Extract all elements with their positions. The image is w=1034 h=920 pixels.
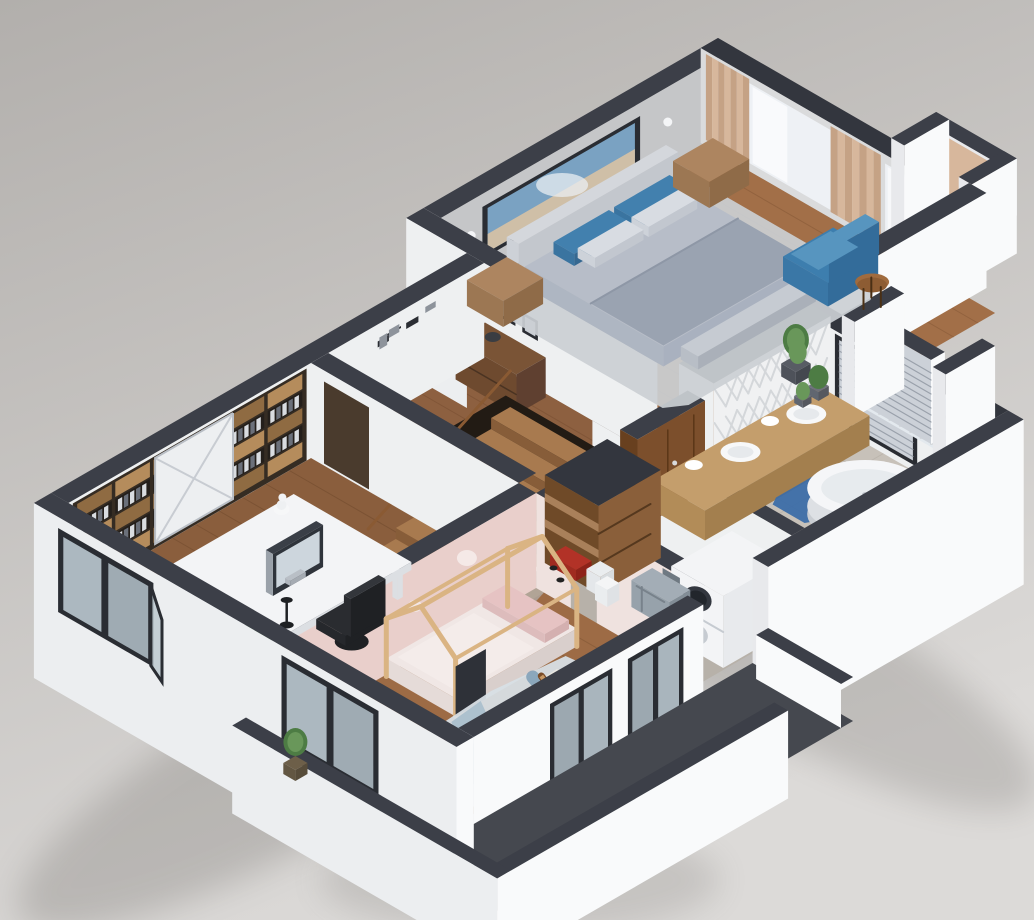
isometric-floorplan-render <box>0 0 1034 920</box>
floorplan-stage <box>0 0 1034 920</box>
